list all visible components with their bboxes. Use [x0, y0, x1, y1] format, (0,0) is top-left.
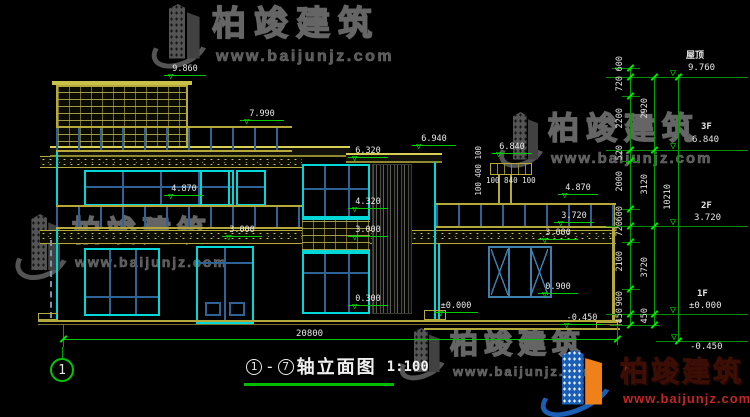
pillar-horizontal-dims: 100 840 100: [486, 177, 536, 185]
level-triangle-icon: ▽: [670, 306, 676, 315]
floor-label-3f: 3F: [701, 123, 712, 132]
dim-inner-3: 520: [615, 145, 625, 160]
floor-label-roof: 屋顶: [686, 52, 704, 61]
axis-line: [62, 347, 63, 358]
brand-url-text: www.baijunjz.com: [623, 392, 750, 405]
level-marker-wing-base: -0.450▽: [560, 313, 604, 325]
level-value: 0.900: [545, 282, 571, 292]
level-triangle-icon: ▽: [352, 206, 357, 214]
dim-inner-9: 450: [615, 308, 625, 323]
level-triangle-icon: ▽: [168, 193, 173, 201]
level-marker-floor2-mid: 3.000▽: [348, 225, 388, 237]
level-value: 3.000: [355, 225, 381, 235]
pillar-vertical-dims: 100 400 100: [474, 146, 483, 196]
level-marker-window-head: 6.320▽: [348, 146, 388, 158]
level-triangle-icon: ▽: [558, 220, 563, 228]
level-triangle-icon: ▽: [496, 151, 501, 159]
roof-texture-band: [40, 156, 302, 168]
level-triangle-icon: ▽: [542, 237, 547, 245]
floor-value-roof: 9.760: [688, 64, 715, 73]
window-2f-a: [200, 170, 230, 206]
dim-inner-8: 900: [615, 291, 625, 306]
level-value: 4.870: [565, 183, 591, 193]
level-value: 6.840: [499, 142, 525, 152]
watermark-top: 柏竣建筑 www.baijunjz.com: [150, 4, 385, 68]
level-value: 7.990: [249, 109, 275, 119]
window-1f: [84, 248, 160, 316]
title-underline: [244, 383, 394, 386]
level-value: 0.300: [355, 294, 381, 304]
floor-value-3f: 6.840: [692, 136, 719, 145]
level-marker-balcony-right: 4.870▽: [558, 183, 598, 195]
axis-number: 1: [58, 363, 66, 378]
level-triangle-icon: ▽: [542, 291, 547, 299]
balcony-railing-left: [56, 205, 302, 229]
pillar-cap: [490, 163, 532, 175]
dim-inner-1: 720: [615, 76, 625, 91]
level-marker-tower-top: 9.860▽: [164, 64, 206, 76]
title-text: 轴立面图: [297, 358, 377, 376]
level-triangle-icon: ▽: [671, 333, 677, 342]
watermark-brand-text: 柏竣建筑: [212, 7, 380, 41]
dim-floor-1: 3120: [640, 174, 650, 194]
level-value: ±0.000: [441, 301, 472, 311]
level-marker-wing-roof: 3.720▽: [554, 211, 594, 223]
window-2f-b: [236, 170, 266, 206]
level-triangle-icon: ▽: [244, 118, 249, 126]
level-value: 4.320: [355, 197, 381, 207]
level-value: -0.450: [567, 313, 598, 323]
brand-name-text: 柏竣建筑: [620, 358, 744, 386]
level-marker-wing-sill: 0.900▽: [538, 282, 578, 294]
level-value: 3.000: [545, 228, 571, 238]
dim-inner-4: 2000: [615, 171, 625, 191]
watermark-url-text: www.baijunjz.com: [216, 49, 394, 65]
baijun-logo-icon: [150, 4, 212, 66]
drawing-title: 1 - 7 轴立面图 1:100: [246, 357, 429, 376]
level-triangle-icon: ▽: [352, 155, 357, 163]
dim-total-height: 10210: [663, 184, 673, 210]
title-dash: -: [265, 357, 275, 376]
dim-floor-3: 450: [640, 308, 650, 323]
axis-circle-to: 7: [278, 359, 294, 375]
wing-base-line: [424, 328, 620, 330]
level-triangle-icon: ▽: [416, 143, 421, 151]
level-triangle-icon: ▽: [352, 303, 357, 311]
level-marker-main-roof: 7.990▽: [240, 109, 284, 121]
level-value: 6.940: [421, 134, 447, 144]
level-marker-sill-1f: 0.300▽: [348, 294, 388, 306]
level-marker-balcony-left: 4.870▽: [164, 184, 204, 196]
title-scale: 1:100: [387, 359, 429, 375]
floor-label-1f: 1F: [697, 290, 708, 299]
level-triangle-icon: ▽: [564, 322, 569, 330]
dim-inner-7: 2100: [615, 251, 625, 271]
baijun-logo-color-icon: [538, 350, 618, 412]
level-value: 3.000: [229, 225, 255, 235]
dim-inner-5: 600: [615, 206, 625, 221]
entry-door: [196, 246, 254, 324]
brand-logo-color: 柏竣建筑 www.baijunjz.com: [538, 350, 750, 414]
dim-inner-6: 720: [615, 221, 625, 236]
floor-value-2f: 3.720: [694, 214, 721, 223]
roof-railing: [56, 126, 292, 152]
level-value: 6.320: [355, 146, 381, 156]
elevation-drawing-canvas: 柏竣建筑 www.baijunjz.com 柏竣建筑 www.baijunjz.…: [0, 0, 750, 417]
floor-value-1f: ±0.000: [689, 302, 722, 311]
main-wall-right-edge: [434, 162, 436, 322]
level-marker-wing-beam: 3.000▽: [538, 228, 578, 240]
level-triangle-icon: ▽: [670, 69, 676, 78]
level-triangle-icon: ▽: [352, 234, 357, 242]
overall-dim-ext-right: [617, 325, 618, 345]
level-triangle-icon: ▽: [438, 310, 443, 318]
axis-circle-from: 1: [246, 359, 262, 375]
level-marker-parapet-right: 6.940▽: [412, 134, 456, 146]
level-marker-ground-mid: ±0.000▽: [434, 301, 478, 313]
level-triangle-icon: ▽: [168, 73, 173, 81]
level-value: 4.870: [171, 184, 197, 194]
ground-line-2: [38, 324, 622, 325]
dim-inner-0: 600: [615, 56, 625, 71]
stone-pier: [372, 164, 412, 314]
level-marker-spandrel-top: 4.320▽: [348, 197, 388, 209]
level-triangle-icon: ▽: [562, 192, 567, 200]
level-value: 9.860: [172, 64, 198, 74]
dim-chain-floor-line: [654, 77, 655, 325]
overall-width-dim: 20800: [296, 330, 323, 339]
dim-floor-0: 2920: [640, 98, 650, 118]
level-marker-pillar-top: 6.840▽: [492, 142, 532, 154]
dim-floor-2: 3720: [640, 257, 650, 277]
left-step: [38, 313, 58, 320]
floor-label-2f: 2F: [701, 202, 712, 211]
dim-chain-total-line: [678, 74, 679, 341]
level-value: 3.720: [561, 211, 587, 221]
overall-dim-line: [63, 339, 617, 340]
main-wall-left-edge: [56, 152, 58, 322]
level-marker-floor2-left: 3.000▽: [222, 225, 262, 237]
ground-line: [38, 320, 622, 322]
center-window-upper: [302, 164, 370, 218]
level-triangle-icon: ▽: [670, 142, 676, 151]
level-triangle-icon: ▽: [670, 218, 676, 227]
baijun-logo-icon: [498, 112, 548, 166]
left-corner-trim: [50, 240, 52, 318]
dim-inner-2: 2200: [615, 108, 625, 128]
axis-bubble-1: 1: [50, 358, 74, 382]
level-triangle-icon: ▽: [226, 234, 231, 242]
